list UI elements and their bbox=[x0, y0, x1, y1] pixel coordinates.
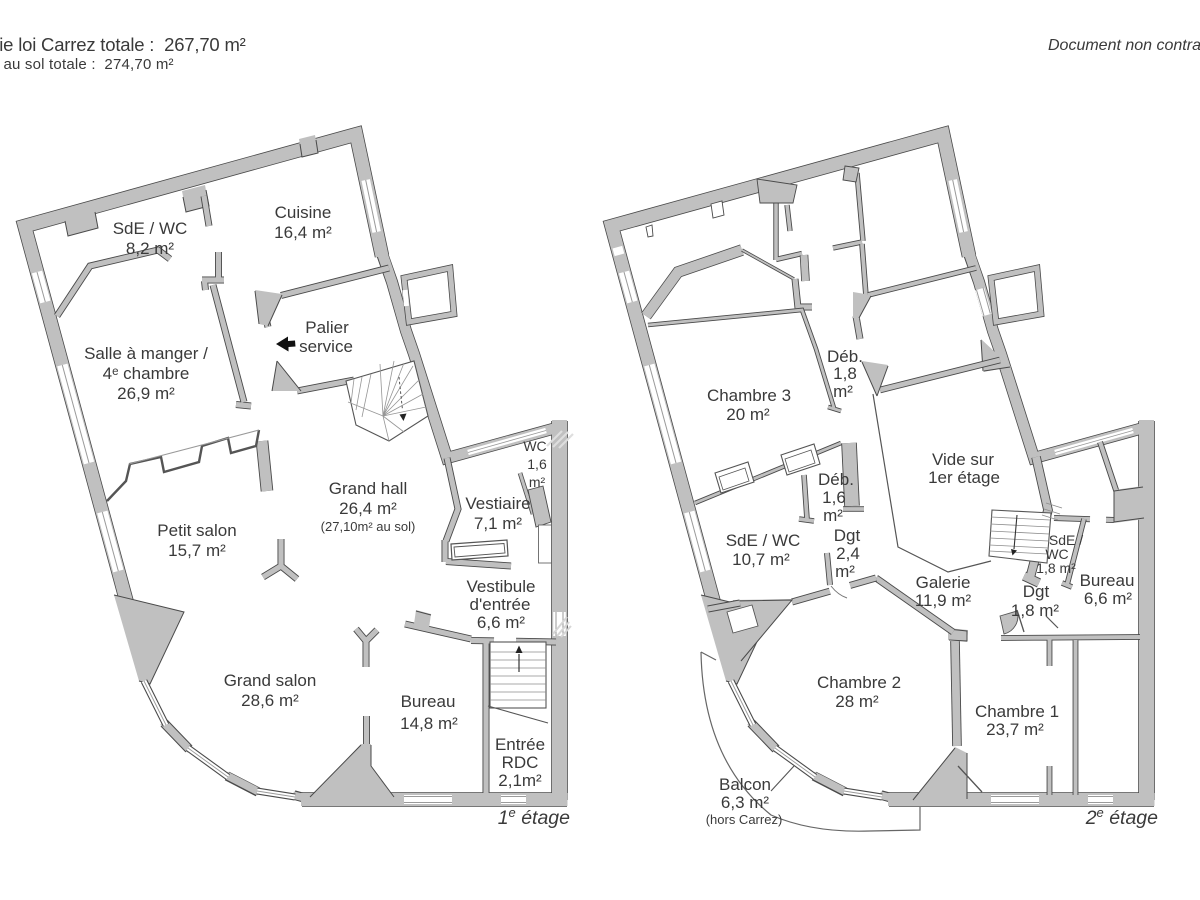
svg-text:Superficie loi Carrez totale :: Superficie loi Carrez totale : 267,70 m² bbox=[0, 34, 246, 55]
svg-text:1,8: 1,8 bbox=[833, 364, 857, 383]
svg-text:(27,10m² au sol): (27,10m² au sol) bbox=[321, 519, 416, 534]
svg-text:1,8 m²: 1,8 m² bbox=[1036, 560, 1076, 576]
svg-text:Vide sur: Vide sur bbox=[932, 450, 994, 469]
svg-text:(hors Carrez): (hors Carrez) bbox=[706, 812, 783, 827]
svg-text:Chambre 2: Chambre 2 bbox=[817, 673, 901, 692]
svg-text:10,7 m²: 10,7 m² bbox=[732, 550, 790, 569]
svg-text:Vestiaire: Vestiaire bbox=[465, 494, 530, 513]
svg-text:8,2 m²: 8,2 m² bbox=[126, 239, 175, 258]
svg-text:7,1 m²: 7,1 m² bbox=[474, 514, 523, 533]
svg-text:1,8 m²: 1,8 m² bbox=[1011, 601, 1060, 620]
svg-text:Salle à manger /: Salle à manger / bbox=[84, 344, 208, 363]
svg-text:1,6: 1,6 bbox=[527, 456, 547, 472]
svg-text:Cuisine: Cuisine bbox=[275, 203, 332, 222]
svg-text:4ᵉ chambre: 4ᵉ chambre bbox=[103, 364, 190, 383]
svg-text:RDC: RDC bbox=[502, 753, 539, 772]
svg-text:6,6 m²: 6,6 m² bbox=[1084, 589, 1133, 608]
svg-text:20 m²: 20 m² bbox=[726, 405, 770, 424]
svg-text:14,8 m²: 14,8 m² bbox=[400, 714, 458, 733]
svg-text:16,4 m²: 16,4 m² bbox=[274, 223, 332, 242]
svg-text:SdE / WC: SdE / WC bbox=[113, 219, 188, 238]
svg-text:d'entrée: d'entrée bbox=[470, 595, 531, 614]
svg-text:Chambre 1: Chambre 1 bbox=[975, 702, 1059, 721]
svg-text:Document non contractuel: Document non contractuel bbox=[1048, 37, 1200, 54]
svg-text:m²: m² bbox=[529, 474, 546, 490]
svg-text:28,6 m²: 28,6 m² bbox=[241, 691, 299, 710]
svg-text:2e étage: 2e étage bbox=[1085, 805, 1158, 829]
svg-text:SdE / WC: SdE / WC bbox=[726, 531, 801, 550]
svg-text:6,6 m²: 6,6 m² bbox=[477, 613, 526, 632]
svg-text:28 m²: 28 m² bbox=[835, 692, 879, 711]
svg-text:Balcon: Balcon bbox=[719, 775, 771, 794]
svg-text:Bureau: Bureau bbox=[1080, 571, 1135, 590]
svg-text:Dgt: Dgt bbox=[834, 526, 861, 545]
svg-text:Petit salon: Petit salon bbox=[157, 521, 236, 540]
svg-text:Dgt: Dgt bbox=[1023, 582, 1050, 601]
svg-text:m²: m² bbox=[833, 382, 853, 401]
svg-text:1er étage: 1er étage bbox=[928, 468, 1000, 487]
svg-text:Grand hall: Grand hall bbox=[329, 479, 407, 498]
svg-text:26,9 m²: 26,9 m² bbox=[117, 384, 175, 403]
svg-text:15,7 m²: 15,7 m² bbox=[168, 541, 226, 560]
svg-text:Entrée: Entrée bbox=[495, 735, 545, 754]
svg-text:1,6: 1,6 bbox=[822, 488, 846, 507]
svg-text:Galerie: Galerie bbox=[916, 573, 971, 592]
svg-text:26,4 m²: 26,4 m² bbox=[339, 499, 397, 518]
svg-text:Chambre 3: Chambre 3 bbox=[707, 386, 791, 405]
svg-text:Bureau: Bureau bbox=[401, 692, 456, 711]
svg-text:Déb.: Déb. bbox=[818, 470, 854, 489]
svg-text:2,1m²: 2,1m² bbox=[498, 771, 542, 790]
svg-text:6,3 m²: 6,3 m² bbox=[721, 793, 770, 812]
svg-text:23,7 m²: 23,7 m² bbox=[986, 720, 1044, 739]
svg-text:Palier: Palier bbox=[305, 318, 349, 337]
svg-text:m²: m² bbox=[835, 562, 855, 581]
svg-text:Surface au sol totale : 274,7: Surface au sol totale : 274,70 m² bbox=[0, 56, 174, 73]
svg-text:Grand salon: Grand salon bbox=[224, 671, 317, 690]
svg-text:11,9 m²: 11,9 m² bbox=[915, 591, 972, 610]
svg-text:2,4: 2,4 bbox=[836, 544, 860, 563]
svg-text:WC: WC bbox=[523, 438, 546, 454]
svg-text:m²: m² bbox=[823, 506, 843, 525]
svg-text:Vestibule: Vestibule bbox=[467, 577, 536, 596]
svg-text:service: service bbox=[299, 337, 353, 356]
